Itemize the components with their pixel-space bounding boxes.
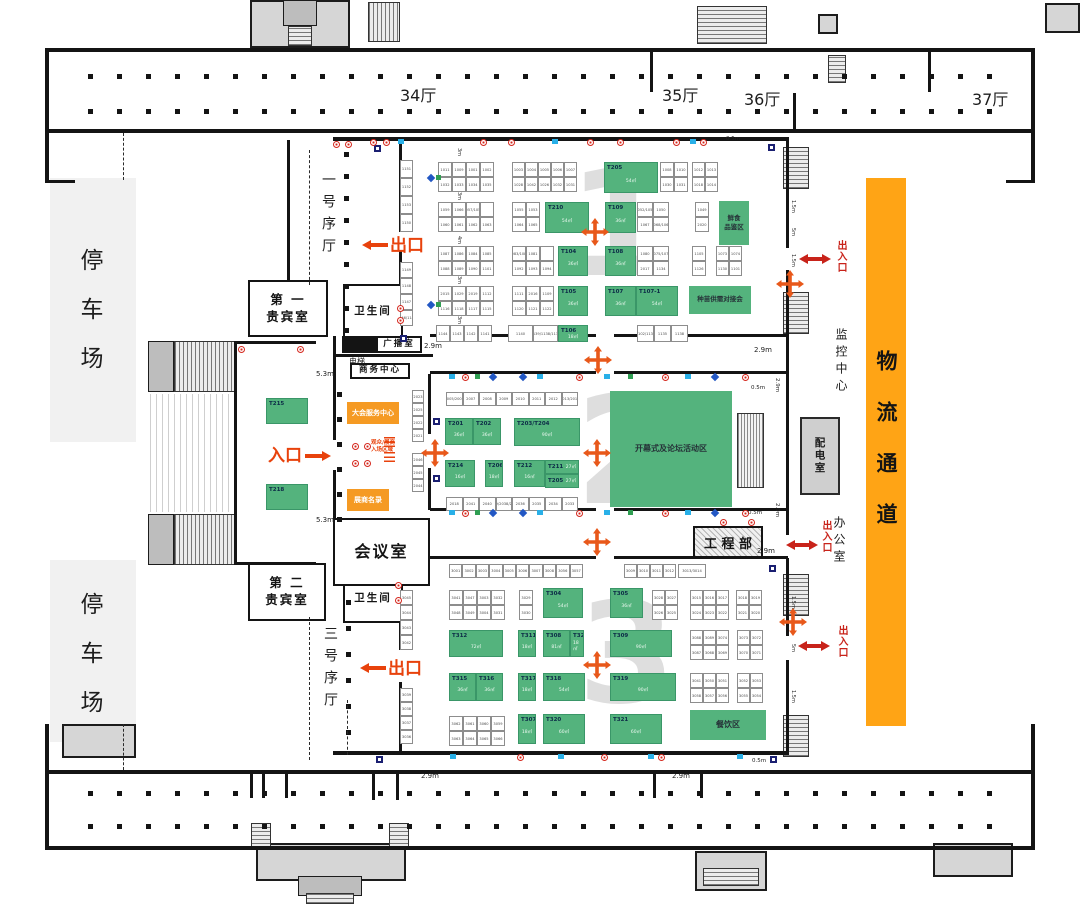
booth-cell: 2025 bbox=[412, 403, 424, 416]
fire-extinguisher-icon bbox=[517, 754, 524, 761]
business-center-label: 商务中心 bbox=[359, 365, 401, 376]
door-marker-icon bbox=[685, 510, 691, 515]
booth-cell: 3001 bbox=[449, 564, 462, 578]
fire-extinguisher-icon bbox=[297, 346, 304, 353]
booth-cell: 1002 bbox=[480, 162, 494, 177]
parking-north-label: 停车场 bbox=[72, 248, 106, 395]
booth-area: 36㎡ bbox=[615, 261, 625, 267]
wall bbox=[653, 772, 656, 798]
column-dot bbox=[871, 791, 876, 796]
booth-cell: 1153 bbox=[400, 196, 413, 214]
vip-room-1-label: 第 一 贵宾室 bbox=[266, 292, 310, 326]
wall bbox=[650, 48, 653, 92]
booth-T107: T10736㎡ bbox=[605, 286, 636, 316]
booth-cell: 1084 bbox=[466, 246, 480, 261]
fire-extinguisher-icon bbox=[397, 305, 404, 312]
booth-cluster: 1083/10821081109210931094 bbox=[512, 246, 554, 276]
booth-cluster: 1008101010301031 bbox=[660, 162, 688, 192]
column-dot bbox=[262, 109, 267, 114]
booth-cell: 3023 bbox=[703, 605, 716, 620]
column-dot bbox=[494, 74, 499, 79]
booth-cluster: 2005/20062007200820092010201120122013/20… bbox=[446, 392, 578, 406]
parking-south-label: 停车场 bbox=[72, 592, 106, 739]
column-dot bbox=[610, 74, 615, 79]
booth-cell: 1135 bbox=[654, 325, 671, 342]
fire-point bbox=[778, 607, 808, 637]
booth-cell: 1061 bbox=[452, 217, 466, 232]
booth-T317: T31718㎡ bbox=[518, 673, 536, 701]
booth-id: T203/T204 bbox=[517, 421, 577, 427]
wall bbox=[287, 140, 290, 283]
booth-cell: 3060 bbox=[477, 716, 491, 731]
column-dot bbox=[726, 109, 731, 114]
column-dot bbox=[175, 791, 180, 796]
booth-cell: 3056 bbox=[716, 688, 729, 703]
booth-cell: 1088 bbox=[438, 261, 452, 276]
booth-area: 18㎡ bbox=[522, 687, 532, 693]
evacuation-arrow-icon bbox=[489, 373, 497, 381]
booth-cluster: 20151029201911121116111811171115 bbox=[438, 286, 494, 316]
entrance-arrow bbox=[305, 447, 331, 459]
booth-cell: 3007 bbox=[529, 564, 542, 578]
booth-cluster: 30623061306030593063306430653066 bbox=[449, 716, 505, 746]
opening-forum-area-label: 开幕式及论坛活动区 bbox=[635, 443, 707, 454]
booth-id: T215 bbox=[269, 401, 305, 407]
column-dot bbox=[378, 74, 383, 79]
booth-cell: 3020 bbox=[749, 605, 762, 620]
column-dot bbox=[958, 74, 963, 79]
wall bbox=[430, 556, 596, 559]
column-dot bbox=[668, 74, 673, 79]
booth-cell: 1093 bbox=[526, 261, 540, 276]
fire-point bbox=[583, 345, 613, 375]
fire-extinguisher-icon bbox=[662, 374, 669, 381]
column-dot bbox=[494, 824, 499, 829]
fire-extinguisher-icon bbox=[576, 510, 583, 517]
booth-T212: T21216㎡ bbox=[514, 460, 545, 487]
column-dot bbox=[871, 109, 876, 114]
wall bbox=[45, 770, 1035, 774]
booth-id: T315 bbox=[452, 676, 473, 682]
dashed-boundary bbox=[347, 700, 348, 755]
booth-cell: 2023 bbox=[412, 390, 424, 403]
booth-area: 54㎡ bbox=[558, 603, 568, 609]
booth-cell: 1102/1136 bbox=[637, 325, 654, 342]
booth-cell: 3051 bbox=[716, 673, 729, 688]
booth-T308: T30881㎡ bbox=[543, 630, 570, 657]
column-dot bbox=[146, 74, 151, 79]
booth-cell: 1074 bbox=[729, 246, 742, 261]
booth-cell: 1151 bbox=[400, 160, 413, 178]
booth-cluster: 3001300230033004300530063007300830563057 bbox=[449, 564, 583, 578]
dashed-boundary bbox=[123, 724, 124, 770]
wall bbox=[614, 371, 788, 374]
booth-cell: 1092 bbox=[512, 261, 526, 276]
wall bbox=[45, 129, 49, 183]
booth-cluster: 1073107411301101 bbox=[716, 246, 742, 276]
column-dot bbox=[88, 791, 93, 796]
booth-cluster: 3073307230703071 bbox=[737, 630, 763, 660]
booth-cell: 3043 bbox=[400, 620, 413, 635]
measurement: 0.5m bbox=[726, 136, 740, 142]
booth-id: T320 bbox=[573, 633, 581, 639]
booth-id: T307 bbox=[521, 717, 533, 723]
column-dot bbox=[581, 109, 586, 114]
column-dot bbox=[175, 824, 180, 829]
booth-T211: T21127㎡ bbox=[545, 460, 579, 474]
door-marker-icon bbox=[449, 510, 455, 515]
column-dot bbox=[146, 109, 151, 114]
column-dot bbox=[552, 109, 557, 114]
column-dot bbox=[639, 109, 644, 114]
booth-id: T320 bbox=[546, 717, 582, 723]
booth-cell: 1101 bbox=[729, 261, 742, 276]
fire-extinguisher-icon bbox=[383, 139, 390, 146]
booth-cell: 3057 bbox=[570, 564, 583, 578]
booth-T321: T32160㎡ bbox=[610, 714, 662, 744]
booth-cluster: 1151115211531150 bbox=[400, 160, 413, 232]
column-dot bbox=[204, 791, 209, 796]
booth-cell: 2022 bbox=[412, 416, 424, 429]
column-dot bbox=[697, 74, 702, 79]
booth-cluster: 3052305330553054 bbox=[737, 673, 763, 703]
booth-cell: 1055 bbox=[512, 202, 526, 217]
booth-cell: 1059 bbox=[438, 202, 452, 217]
booth-T305: T30536㎡ bbox=[610, 588, 643, 618]
column-dot bbox=[407, 109, 412, 114]
booth-cell bbox=[480, 202, 494, 217]
wall bbox=[1031, 770, 1035, 850]
booth-cell: 1065 bbox=[526, 217, 540, 232]
service-center-label: 大会服务中心 bbox=[352, 408, 394, 418]
fire-extinguisher-icon bbox=[508, 139, 515, 146]
booth-cell: 1008 bbox=[660, 162, 674, 177]
booth-cell: 2016 bbox=[526, 286, 540, 301]
booth-cell: 3089 bbox=[703, 630, 716, 645]
column-dot bbox=[204, 109, 209, 114]
booth-cell: 3063 bbox=[449, 731, 463, 746]
booth-cell: 1109 bbox=[540, 286, 554, 301]
booth-cell: 1062 bbox=[466, 217, 480, 232]
column-dot bbox=[344, 284, 349, 289]
booth-cell: 3022 bbox=[716, 605, 729, 620]
fire-extinguisher-icon bbox=[480, 139, 487, 146]
booth-cell: 2033 bbox=[562, 497, 579, 511]
logistics-channel-label: 物流通道 bbox=[871, 350, 901, 554]
column-dot bbox=[233, 791, 238, 796]
booth-cell: 3054 bbox=[750, 688, 763, 703]
booth-cell: 1060 bbox=[438, 217, 452, 232]
booth-cluster: 308830893074308730683069 bbox=[690, 630, 729, 660]
wall bbox=[234, 341, 316, 344]
elevator-label: 电梯 bbox=[349, 356, 365, 367]
booth-cell: 1012 bbox=[692, 162, 705, 177]
booth-cell: 1010 bbox=[674, 162, 688, 177]
vip-room-2-label: 第 二 贵宾室 bbox=[265, 575, 309, 609]
safety-marker-icon bbox=[628, 374, 633, 379]
column-dot bbox=[436, 791, 441, 796]
fire-extinguisher-icon bbox=[742, 510, 749, 517]
booth-id: T318 bbox=[546, 676, 582, 682]
wall bbox=[786, 415, 789, 535]
booth-cell: 1034 bbox=[466, 177, 480, 192]
wall bbox=[45, 770, 49, 850]
booth-cell: 2008 bbox=[479, 392, 496, 406]
safety-marker-icon bbox=[436, 302, 441, 307]
booth-id: T202 bbox=[476, 421, 498, 427]
column-dot bbox=[262, 74, 267, 79]
booth-cell: 2012 bbox=[545, 392, 562, 406]
wall bbox=[1031, 724, 1035, 772]
booth-id: T305 bbox=[613, 591, 640, 597]
booth-cell: 1150 bbox=[400, 214, 413, 232]
column-dot bbox=[146, 824, 151, 829]
booth-T316: T31636㎡ bbox=[476, 673, 503, 701]
booth-area: 36㎡ bbox=[482, 432, 492, 438]
exit-south-arrow bbox=[360, 659, 386, 671]
exit-sign-icon bbox=[770, 756, 777, 763]
booth-T312: T31272㎡ bbox=[449, 630, 503, 657]
entry-exit-1-arrow bbox=[799, 250, 831, 262]
column-dot bbox=[291, 824, 296, 829]
foyer-3-label: 三号序厅 bbox=[320, 626, 340, 714]
booth-T318: T31854㎡ bbox=[543, 673, 585, 701]
booth-cell: 3055 bbox=[737, 688, 750, 703]
column-dot bbox=[344, 218, 349, 223]
column-dot bbox=[337, 417, 342, 422]
engineering-dept-label: 工 程 部 bbox=[704, 533, 752, 552]
column-dot bbox=[117, 824, 122, 829]
measurement: 5.3m bbox=[316, 516, 334, 524]
measurement: 1.5m bbox=[790, 254, 796, 267]
booth-T215: T215 bbox=[266, 398, 308, 424]
booth-cluster: 301530163017302430233022 bbox=[690, 590, 729, 620]
column-dot bbox=[494, 109, 499, 114]
booth-cell: 2010 bbox=[512, 392, 529, 406]
booth-cell: 2044 bbox=[412, 479, 424, 492]
booth-cell: 2017 bbox=[637, 261, 653, 276]
column-dot bbox=[523, 791, 528, 796]
booth-cluster: 3039303830373036 bbox=[400, 688, 413, 744]
booth-cell: 3048 bbox=[449, 605, 463, 620]
booth-area: 27㎡ bbox=[566, 464, 576, 470]
wall bbox=[372, 772, 375, 800]
column-dot bbox=[871, 824, 876, 829]
booth-cluster: 3009301030113012 bbox=[624, 564, 676, 578]
booth-cell: 1042 bbox=[525, 177, 538, 192]
column-dot bbox=[552, 791, 557, 796]
exhibition-floor-plan: 物流通道配电室工 程 部123第 一 贵宾室第 二 贵宾室卫生间卫生间会议室广播… bbox=[0, 0, 1080, 904]
column-dot bbox=[344, 240, 349, 245]
column-dot bbox=[344, 174, 349, 179]
column-dot bbox=[726, 824, 731, 829]
booth-cell: 2041 bbox=[463, 497, 480, 511]
booth-cell: 3061 bbox=[463, 716, 477, 731]
fire-extinguisher-icon bbox=[397, 317, 404, 324]
booth-cell: 2039/2038/2037 bbox=[496, 497, 513, 511]
measurement: 5m bbox=[790, 644, 796, 652]
door-marker-icon bbox=[604, 510, 610, 515]
column-dot bbox=[344, 196, 349, 201]
door-marker-icon bbox=[685, 374, 691, 379]
booth-cluster: 11401139/1138/1137 bbox=[508, 325, 558, 342]
booth-cell: 3002 bbox=[462, 564, 475, 578]
booth-cell: 3025 bbox=[665, 605, 678, 620]
booth-cell: 1052/1051 bbox=[637, 202, 653, 217]
booth-cell: 1090 bbox=[466, 261, 480, 276]
column-dot bbox=[117, 109, 122, 114]
column-dot bbox=[320, 791, 325, 796]
booth-id: T206 bbox=[488, 463, 500, 469]
booth-cell: 1005 bbox=[538, 162, 551, 177]
exit-sign-icon bbox=[400, 335, 407, 342]
booth-cell: 3037 bbox=[400, 716, 413, 730]
booth-cell: 3004 bbox=[489, 564, 502, 578]
column-dot bbox=[117, 74, 122, 79]
column-dot bbox=[784, 109, 789, 114]
booth-cell: 3070 bbox=[737, 645, 750, 660]
booth-cluster: 1012101310181014 bbox=[692, 162, 718, 192]
column-dot bbox=[668, 824, 673, 829]
wall bbox=[1006, 180, 1035, 183]
column-dot bbox=[465, 791, 470, 796]
exit-sign-icon bbox=[768, 144, 775, 151]
fire-extinguisher-icon bbox=[345, 141, 352, 148]
booth-area: 16㎡ bbox=[524, 474, 534, 480]
booth-cell: 2013/2014 bbox=[562, 392, 579, 406]
column-dot bbox=[581, 791, 586, 796]
evacuation-arrow-icon bbox=[519, 373, 527, 381]
booth-cell: 1130 bbox=[716, 261, 729, 276]
booth-id: T105 bbox=[561, 289, 585, 295]
booth-id: T108 bbox=[608, 249, 633, 255]
booth-cell: 3072 bbox=[750, 630, 763, 645]
booth-cell bbox=[540, 246, 554, 261]
fire-extinguisher-icon bbox=[395, 582, 402, 589]
booth-cell: 1018 bbox=[692, 177, 705, 192]
column-dot bbox=[755, 74, 760, 79]
booth-cell: 1006 bbox=[551, 162, 564, 177]
booth-cell: 1030 bbox=[660, 177, 674, 192]
evacuation-arrow-icon bbox=[711, 373, 719, 381]
fire-point bbox=[582, 527, 612, 557]
booth-id: T210 bbox=[548, 205, 586, 211]
booth-cell: 1134 bbox=[653, 261, 669, 276]
booth-area: 18㎡ bbox=[489, 474, 499, 480]
booth-cell: 3019 bbox=[749, 590, 762, 605]
booth-cell: 2020 bbox=[695, 217, 709, 232]
booth-id: T212 bbox=[517, 463, 542, 469]
booth-cell: 1117 bbox=[466, 301, 480, 316]
measurement: 3m bbox=[456, 148, 462, 156]
booth-T311: T31118㎡ bbox=[518, 630, 536, 657]
hall-37-label: 37厅 bbox=[972, 86, 1008, 110]
booth-area: 36㎡ bbox=[457, 687, 467, 693]
column-dot bbox=[346, 626, 351, 631]
fire-extinguisher-icon bbox=[462, 374, 469, 381]
booth-cell: 1087 bbox=[438, 246, 452, 261]
measurement: 0.5m bbox=[748, 510, 762, 516]
booth-area: 36㎡ bbox=[621, 603, 631, 609]
column-dot bbox=[552, 74, 557, 79]
booth-cluster: 10492020 bbox=[695, 202, 709, 232]
booth-cell: 1075/1078 bbox=[653, 246, 669, 261]
booth-area: 36㎡ bbox=[484, 687, 494, 693]
fire-point bbox=[420, 438, 450, 468]
safety-marker-icon bbox=[628, 510, 633, 515]
column-dot bbox=[262, 824, 267, 829]
booth-cluster: 10871086108410851088108910901101 bbox=[438, 246, 494, 276]
door-marker-icon bbox=[648, 754, 654, 759]
column-dot bbox=[436, 74, 441, 79]
booth-cell: 3029 bbox=[519, 590, 533, 605]
booth-id: T107-1 bbox=[639, 289, 675, 295]
seedling-supply-meeting-label: 种苗供需对接会 bbox=[697, 295, 743, 304]
power-distribution-room-label: 配电室 bbox=[813, 437, 828, 475]
exit-sign-icon bbox=[433, 418, 440, 425]
booth-cell: 1141 bbox=[478, 325, 492, 342]
column-dot bbox=[581, 824, 586, 829]
column-dot bbox=[813, 109, 818, 114]
wall bbox=[428, 374, 431, 434]
booth-cell: 1031 bbox=[564, 177, 577, 192]
column-dot bbox=[900, 109, 905, 114]
booth-cell: 2007 bbox=[463, 392, 480, 406]
measurement: 3m bbox=[456, 192, 462, 200]
wall bbox=[234, 341, 237, 565]
booth-area: 54㎡ bbox=[562, 218, 572, 224]
booth-T107-1: T107-154㎡ bbox=[636, 286, 678, 316]
booth-area: 90㎡ bbox=[636, 644, 646, 650]
booth-id: T311 bbox=[521, 633, 533, 639]
fire-extinguisher-icon bbox=[364, 443, 371, 450]
dashed-boundary bbox=[123, 133, 124, 180]
booth-T218: T218 bbox=[266, 484, 308, 510]
booth-cell: 1031 bbox=[674, 177, 688, 192]
booth-cell: 3088 bbox=[690, 630, 703, 645]
fire-point bbox=[580, 217, 610, 247]
booth-cell: 1066 bbox=[452, 202, 466, 217]
column-dot bbox=[900, 791, 905, 796]
column-dot bbox=[378, 109, 383, 114]
entry-exit-2-label: 出入口 bbox=[818, 520, 833, 553]
booth-cell: 1080 bbox=[637, 246, 653, 261]
booth-id: T317 bbox=[521, 676, 533, 682]
evacuation-arrow-icon bbox=[427, 301, 435, 309]
column-dot bbox=[610, 791, 615, 796]
column-dot bbox=[344, 328, 349, 333]
booth-cell: 3041 bbox=[449, 590, 463, 605]
booth-T104: T10436㎡ bbox=[558, 246, 588, 276]
booth-area: 18㎡ bbox=[522, 644, 532, 650]
booth-cell: 1026 bbox=[538, 177, 551, 192]
fire-extinguisher-icon bbox=[370, 139, 377, 146]
booth-T106: T10618㎡ bbox=[558, 325, 588, 342]
exit-sign-icon bbox=[376, 756, 383, 763]
column-dot bbox=[958, 791, 963, 796]
booth-cluster: 2023202520222021 bbox=[412, 390, 424, 442]
booth-cell: 3049 bbox=[463, 605, 477, 620]
column-dot bbox=[494, 791, 499, 796]
wall bbox=[45, 724, 49, 772]
booth-cell: 3003 bbox=[476, 564, 489, 578]
column-dot bbox=[929, 109, 934, 114]
restroom-north-label: 卫生间 bbox=[354, 304, 392, 318]
booth-cell: 3015 bbox=[690, 590, 703, 605]
booth-id: T304 bbox=[546, 591, 580, 597]
measurement: 3m bbox=[456, 276, 462, 284]
booth-cell: 1049 bbox=[695, 202, 709, 217]
